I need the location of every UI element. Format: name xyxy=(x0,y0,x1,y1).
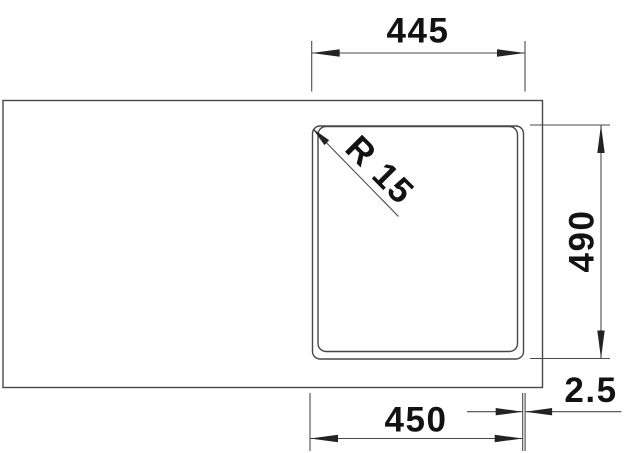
dim-edge-offset: 2.5 xyxy=(467,371,622,415)
dim-bottom-width-label: 450 xyxy=(385,401,448,440)
dim-offset-arrow-left xyxy=(496,408,523,415)
dim-bottom-arrow-right xyxy=(495,435,523,442)
dim-bottom-width: 450 xyxy=(310,393,525,451)
radius-leader-arrow xyxy=(313,129,330,146)
sink-dimension-drawing: 445 490 450 2.5 xyxy=(0,0,625,453)
dim-offset-arrow-right xyxy=(525,408,552,415)
dim-side-arrow-bottom xyxy=(597,331,604,359)
dim-top-width: 445 xyxy=(312,12,525,92)
sink-outer-rect xyxy=(3,101,543,388)
technical-drawing-page: 445 490 450 2.5 xyxy=(0,0,625,453)
dim-top-arrow-left xyxy=(312,49,340,56)
dim-edge-offset-label: 2.5 xyxy=(564,371,617,410)
sink-outline xyxy=(3,101,543,388)
dim-side-height-label: 490 xyxy=(563,210,602,273)
dim-top-arrow-right xyxy=(497,49,525,56)
radius-callout: R 15 xyxy=(313,128,422,216)
dim-top-width-label: 445 xyxy=(387,12,450,51)
dim-bottom-arrow-left xyxy=(310,435,338,442)
dim-side-arrow-top xyxy=(597,125,604,153)
corner-radius-label: R 15 xyxy=(338,128,422,212)
